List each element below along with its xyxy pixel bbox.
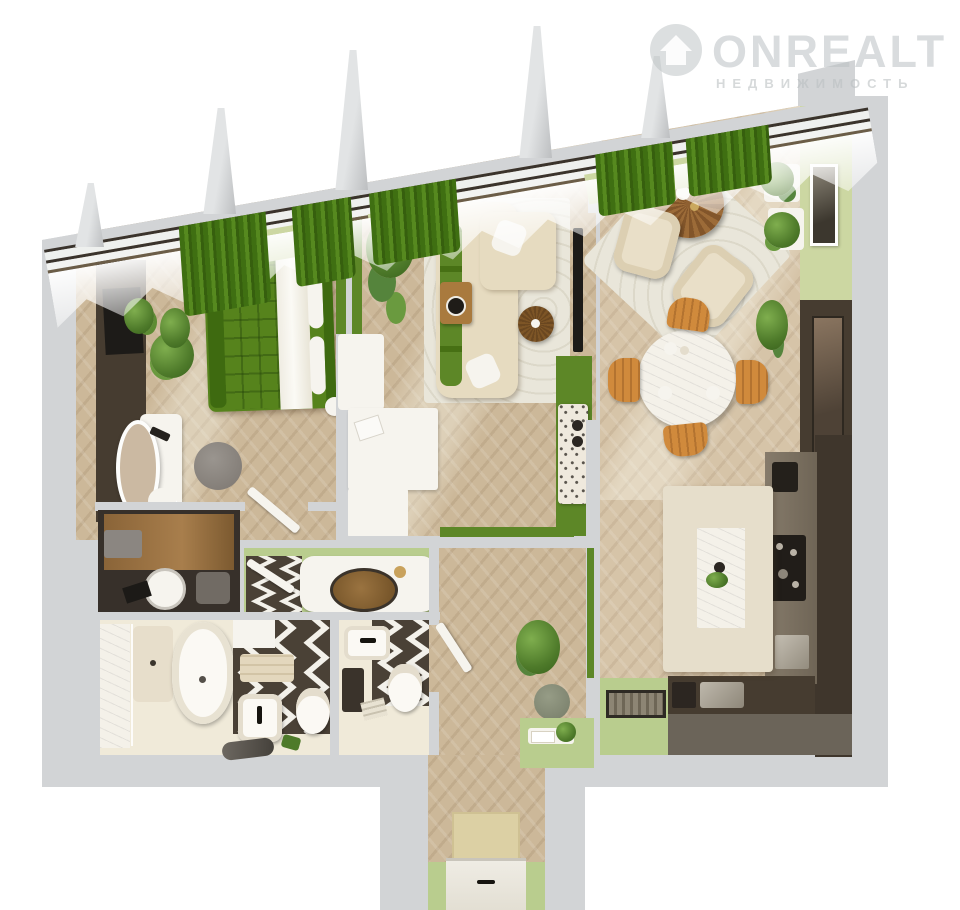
dining-chair [736, 360, 768, 404]
oven-steel-front [775, 635, 809, 669]
side-table-decor [531, 319, 540, 328]
onrealt-watermark: ONREALT НЕДВИЖИМОСТЬ [640, 16, 950, 100]
hall-pouf [534, 684, 570, 720]
living-hall-wall-green-face [440, 527, 574, 537]
kitchen-dark-floor [668, 714, 852, 755]
vanity-pouf [194, 442, 242, 490]
basin-faucet [257, 706, 262, 724]
niche-plant [556, 722, 576, 742]
hall-wc-wall [429, 692, 439, 755]
wc-washbasin [344, 626, 390, 660]
bath-shelf-box [233, 620, 275, 648]
kitchen-back-cabinets [815, 435, 852, 757]
entry-side-strip [428, 862, 446, 910]
bath-wc-partition [330, 618, 339, 755]
facade-pillar [518, 26, 552, 158]
bedroom-desk-unit [338, 334, 384, 410]
storage-unit-l-lower [348, 488, 408, 538]
towel-stack [240, 654, 294, 682]
console-decor-bottles [572, 436, 583, 447]
entry-door-handle [477, 880, 495, 884]
washing-machine-drum [144, 568, 186, 610]
table-setting [664, 342, 677, 355]
hob-inset [672, 682, 696, 708]
vanity-stool [404, 558, 421, 575]
shower-marble-wall [100, 624, 130, 748]
dining-chair [608, 358, 640, 402]
entry-side-strip [526, 862, 545, 910]
bathtub [172, 622, 234, 724]
green-curtain [369, 179, 461, 266]
niche-tray [531, 731, 555, 743]
island-plant [706, 572, 728, 588]
doormat [452, 812, 520, 860]
vanity-jar [394, 566, 406, 578]
facade-pillar [74, 183, 104, 247]
shower-glass [131, 624, 133, 746]
table-setting [658, 386, 672, 400]
green-curtain [292, 197, 356, 287]
entry-door [446, 858, 526, 910]
niche-wall [240, 540, 440, 548]
cooktop-knob [776, 543, 783, 550]
laundry-basket [196, 572, 230, 604]
console-decor-bottles [572, 420, 583, 431]
nook-mirror [812, 316, 844, 454]
cooktop-knob [778, 569, 788, 579]
green-curtain [595, 141, 676, 216]
coffee-table-tray [446, 296, 466, 316]
bath-top-wall [95, 612, 440, 620]
drain-mat [606, 690, 666, 718]
floor-plan-render: ONREALT НЕДВИЖИМОСТЬ [0, 0, 960, 910]
facade-corner-block [798, 60, 855, 106]
kitchen-sink [700, 682, 744, 708]
green-curtain [179, 212, 272, 317]
toilet-bowl [296, 688, 330, 734]
floor-plant [756, 300, 788, 350]
vanity-wood-basin [330, 568, 398, 612]
cooktop-knob [792, 581, 799, 588]
coffee-machine [772, 462, 798, 492]
console-sideboard-terrazzo [558, 404, 588, 504]
wc-toilet-bowl [388, 664, 422, 712]
folded-towels [104, 530, 142, 558]
bedroom-hall-wall [308, 502, 338, 511]
hall-plant [516, 620, 560, 674]
hall-wc-wall [429, 545, 439, 625]
facade-pillar [334, 50, 368, 190]
facade-pillar [640, 56, 670, 138]
laundry-closet [98, 510, 240, 620]
facade-pillar [202, 108, 236, 214]
wc-basin-faucet [360, 638, 376, 643]
apartment-outline [0, 0, 960, 910]
bathtub-drain [199, 676, 206, 683]
table-setting [706, 386, 720, 400]
vanity-stool [308, 560, 323, 575]
cooktop-knob [790, 549, 797, 556]
shower-drain [150, 660, 156, 666]
cooktop-oven-panel [770, 535, 806, 601]
hall-kitchen-wall-green-face [587, 548, 594, 678]
round-dining-table [638, 330, 736, 428]
